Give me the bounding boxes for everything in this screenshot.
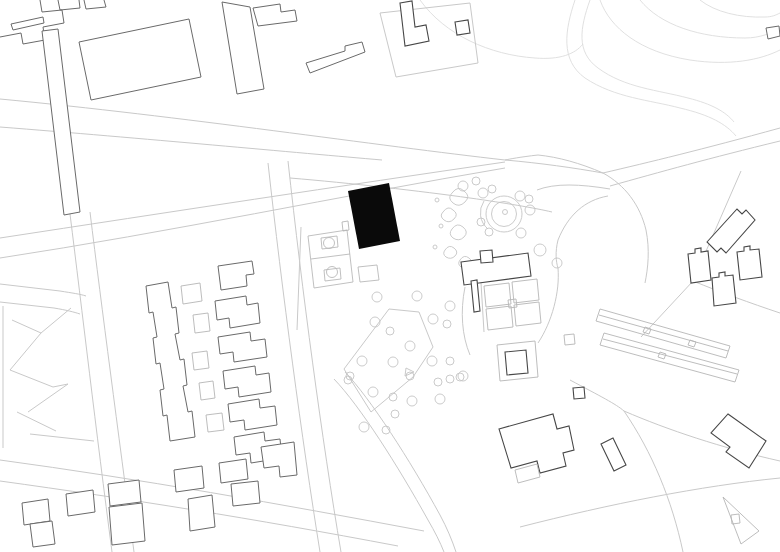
mound-and-shrubs [433,177,562,268]
apartment-slab [146,282,195,441]
site-plan-page [0,0,780,552]
greenhouses [596,309,739,382]
tree-icons [344,291,468,434]
school-and-gardens [461,250,531,375]
large-hall-building [79,19,201,100]
orchard-trees [344,291,468,434]
buildings-northeast [688,209,762,306]
contour-paths [420,0,780,136]
context-buildings-north [0,0,780,215]
housing-west [146,261,282,463]
long-strip-building [42,29,80,215]
proposed-building-footprint [348,183,400,249]
school-building [461,253,531,285]
site-plan-map [0,0,780,552]
garden-plots [484,279,575,381]
row-houses [215,261,282,463]
highlighted-building [342,183,400,249]
buildings-southeast [499,387,766,544]
greenhouse-2 [600,333,739,382]
greenhouse-1 [596,309,730,358]
park-paths [3,306,94,448]
